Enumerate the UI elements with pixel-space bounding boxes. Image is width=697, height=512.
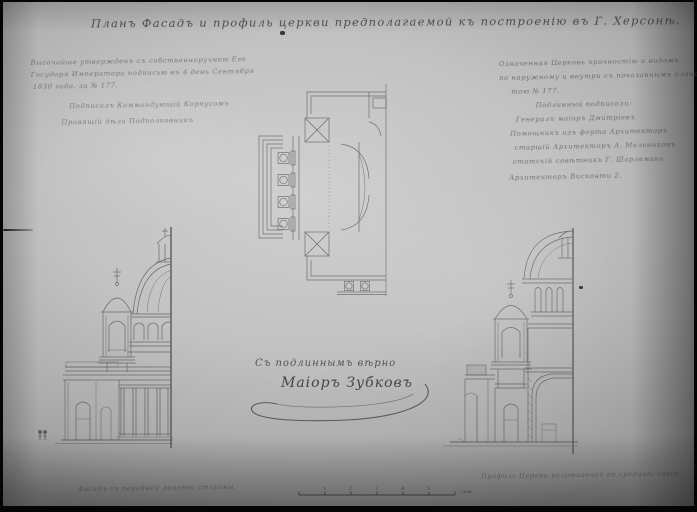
scale-bar-lines [299,492,455,496]
right-annotation-block: Означенная Церковь прочностію и видомъ п… [499,56,697,188]
sheet-title: Планъ Фасадъ и профиль церкви предполага… [91,14,616,31]
annotation-line: Генералъ маіоръ Дмитріевъ [516,112,696,124]
scale-number: 3 [375,486,378,492]
scale-unit-label: саж. [461,489,474,495]
annotation-line: по наружному и внутри съ показаннымъ пла… [499,70,695,82]
scratch-mark [3,229,33,231]
paper-sheet: Планъ Фасадъ и профиль церкви предполага… [3,2,694,506]
facade-caption: Фасадъ съ передней лицевой стороны [78,483,234,493]
floor-plan-lines [259,84,386,296]
dark-speck [579,286,583,289]
annotation-line: Подписалъ Коммандующій Корпусомъ [69,99,251,110]
scale-bar: 1 2 3 4 5 саж. [293,484,478,502]
annotation-line: 1830 года. за № 177. [33,79,251,91]
signature-flourish [243,380,448,432]
archival-photo-of-architectural-sheet: Планъ Фасадъ и профиль церкви предполага… [0,0,697,512]
certification-line: Съ подлиннымъ вѣрно [255,358,396,369]
floor-plan-drawing [253,84,393,296]
scale-number: 1 [323,486,326,492]
annotation-line: Высочайше утвержденъ съ собственноручною… [30,55,250,67]
ink-blot [280,31,285,35]
left-annotation-block: Высочайше утвержденъ съ собственноручною… [30,55,251,131]
facade-elevation-drawing [33,222,205,454]
section-lines [443,228,578,454]
scale-bar-numbers: 1 2 3 4 5 саж. [323,486,474,495]
sheet-title-text: Планъ Фасадъ и профиль церкви предполага… [91,13,681,30]
scale-number: 5 [427,486,430,492]
annotation-line: тою № 177. [511,84,695,96]
section-caption: Профиль Церкви разрѣзанной по срединѣ ли… [481,470,678,481]
facade-lines [38,227,173,448]
annotation-line: статскій совѣтникъ Г. Шарлемань [513,154,697,166]
scale-number: 4 [400,486,404,492]
annotation-line: Архитекторъ Висконти 2. [509,170,697,182]
annotation-line: Правящій дѣла Подполковникъ [61,115,251,126]
annotation-line: старшій Архитекторъ А. Мельниковъ [514,140,696,152]
facade-caption-text: Фасадъ съ передней лицевой стороны [78,483,234,493]
annotation-line: Помощникъ изъ форта Архитекторъ [510,126,696,138]
section-profile-drawing [438,228,588,460]
section-caption-text: Профиль Церкви разрѣзанной по срединѣ ли… [481,470,678,481]
annotation-line: Государя Императора подписью въ 4 день С… [31,67,251,79]
annotation-line: Подлинный подписали: [536,98,696,109]
annotation-line: Означенная Церковь прочностію и видомъ [499,56,695,68]
scale-number: 2 [348,486,352,492]
